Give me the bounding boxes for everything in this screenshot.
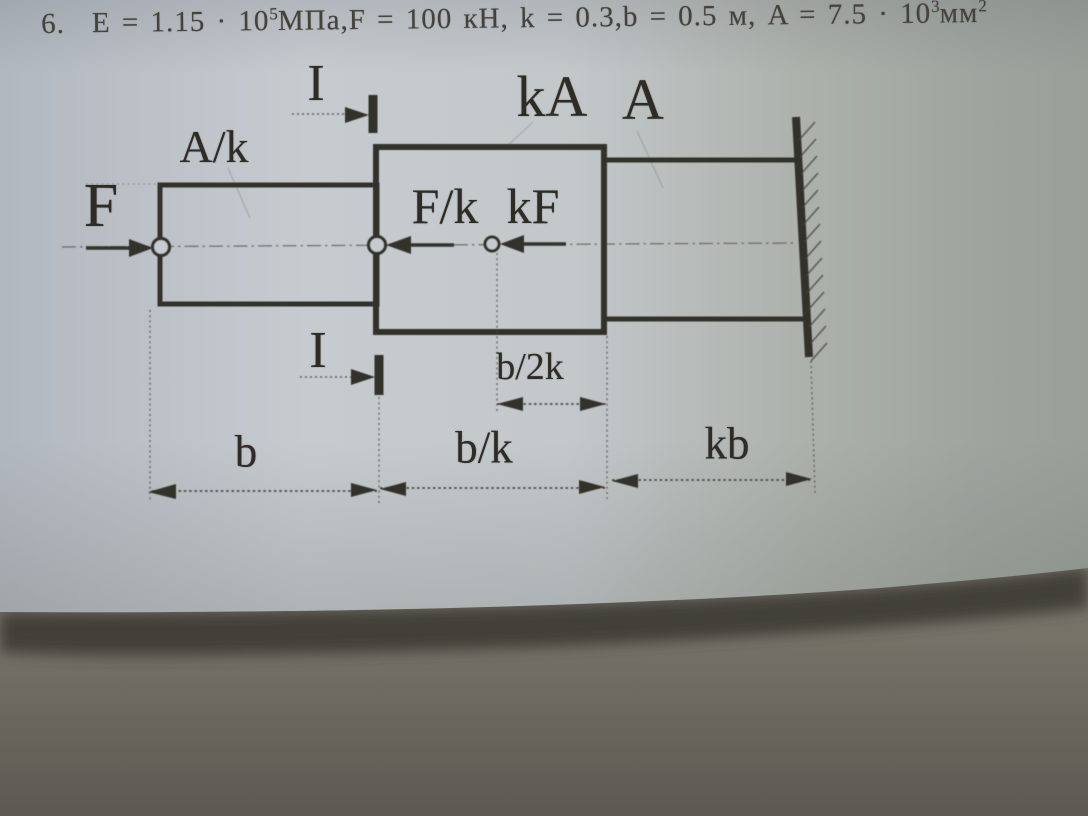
load-point-mid — [485, 237, 499, 251]
force-kf-label: kF — [507, 181, 560, 231]
dim-b-label: b — [235, 430, 258, 475]
formula-seg-1: E = 1.15 · 10 — [92, 5, 270, 39]
dim-bk-label: b/k — [455, 426, 513, 471]
formula-exponent-1: 5 — [269, 4, 278, 23]
section-top-label: I — [307, 58, 324, 110]
formula-seg-3: мм — [939, 0, 978, 29]
load-point-joint — [369, 237, 386, 254]
area-mid-label: kA — [517, 68, 588, 126]
formula-exponent-2: 3 — [931, 0, 940, 16]
problem-number: 6. — [41, 7, 65, 39]
formula-seg-2: МПа,F = 100 кН, k = 0.3,b = 0.5 м, A = 7… — [278, 0, 932, 37]
area-left-label: A/k — [180, 124, 249, 170]
force-f-label: F — [84, 175, 118, 237]
dim-kb-label: kb — [705, 422, 750, 467]
load-point-left — [153, 239, 170, 256]
dim-b2k-label: b/2k — [496, 348, 564, 386]
force-fk-label: F/k — [412, 181, 479, 231]
formula-exponent-3: 2 — [978, 0, 987, 15]
area-right-label: A — [622, 71, 664, 129]
worksheet-photo: 6.E = 1.15 · 105МПа,F = 100 кН, k = 0.3,… — [0, 0, 1088, 816]
section-bottom-label: I — [309, 325, 326, 377]
